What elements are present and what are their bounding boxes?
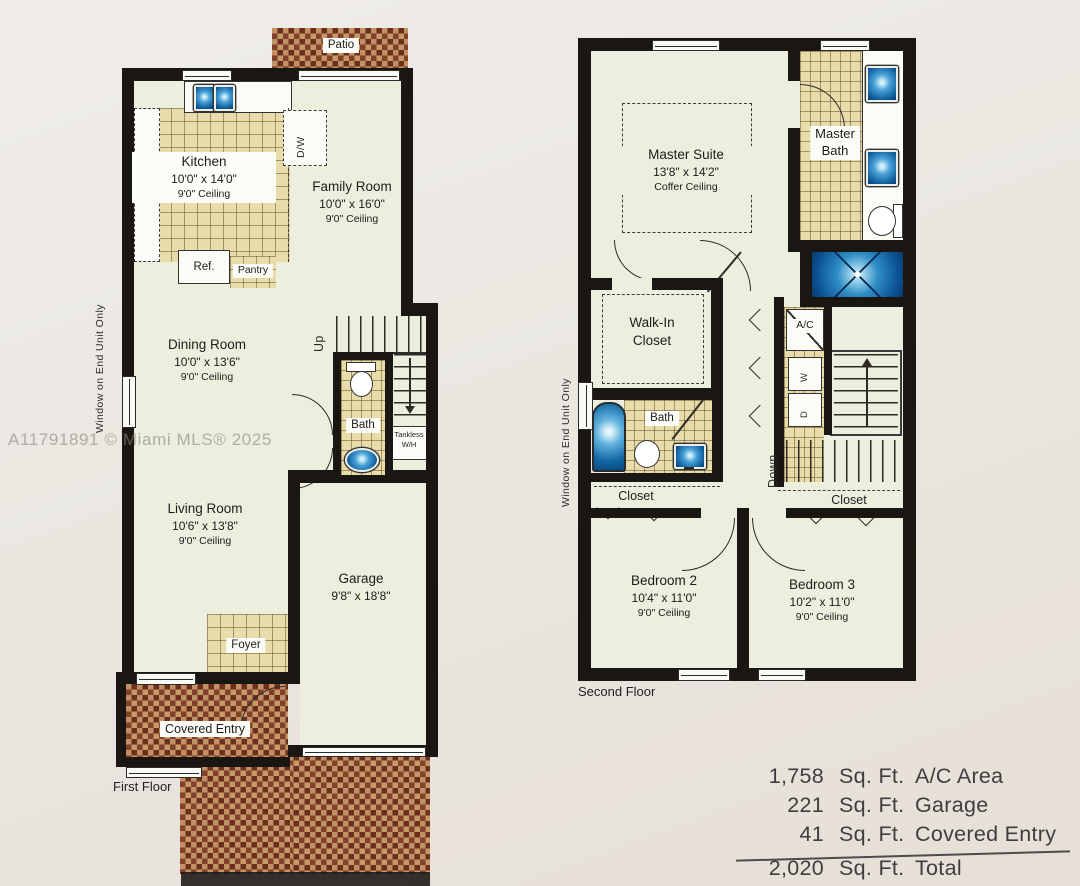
suite-bath-wall-upper <box>788 51 800 81</box>
entry-area-unit: Sq. Ft. <box>839 822 915 847</box>
dining-room-label: Dining Room 10'0" x 13'6" 9'0" Ceiling <box>147 336 267 385</box>
master-suite-dims: 13'8" x 14'2" <box>615 164 757 180</box>
sf-wall-left <box>578 38 591 681</box>
sf-wall-right <box>903 38 916 681</box>
mls-watermark: A11791891 © Miami MLS® 2025 <box>8 430 272 450</box>
closet-left-label: Closet <box>614 489 657 503</box>
bedroom2-window <box>678 669 730 681</box>
ac-label: A/C <box>793 319 817 333</box>
living-room-ceiling: 9'0" Ceiling <box>145 534 265 548</box>
dishwasher-label: D/W <box>295 118 307 158</box>
shower-left-wall <box>800 252 812 297</box>
stairs-down-label: Down <box>766 432 780 488</box>
stairs-up-label: Up <box>312 318 326 352</box>
toilet-bowl <box>350 371 373 397</box>
square-footage-table: 1,758 Sq. Ft. A/C Area 221 Sq. Ft. Garag… <box>736 764 1070 885</box>
walkin-label-1: Walk-In <box>602 314 702 332</box>
pantry-label: Pantry <box>233 264 273 278</box>
sf-bath-bottom-wall <box>578 473 723 482</box>
bedroom2-top-wall <box>591 508 701 518</box>
sf-bath-sink-base <box>684 467 694 470</box>
stair-direction-arrow <box>409 358 411 412</box>
dining-room-name: Dining Room <box>147 336 267 354</box>
garage-dims: 9'8" x 18'8" <box>301 588 421 604</box>
bedroom3-ceiling: 9'0" Ceiling <box>752 610 892 624</box>
sf-wall-bottom <box>578 668 916 681</box>
sf-window-note: Window on End Unit Only <box>560 382 572 507</box>
living-room-name: Living Room <box>145 500 265 518</box>
suite-bath-wall-lower <box>788 128 800 250</box>
kitchen-name: Kitchen <box>136 153 272 171</box>
family-room-ceiling: 9'0" Ceiling <box>292 212 412 226</box>
driveway-area <box>288 755 430 874</box>
entry-area-label: Covered Entry <box>915 822 1070 847</box>
sf-bath-label: Bath <box>645 411 679 426</box>
garage-area-unit: Sq. Ft. <box>839 793 915 818</box>
stairs-up-flight <box>336 316 426 352</box>
sf-side-window <box>578 382 593 430</box>
patio-slider-door <box>298 70 400 81</box>
laundry-right-wall <box>824 307 832 435</box>
dining-room-ceiling: 9'0" Ceiling <box>147 370 267 384</box>
covered-entry-left-wall <box>116 672 126 767</box>
ff-bath-sink <box>345 448 379 472</box>
master-suite-ceiling: Coffer Ceiling <box>615 180 757 194</box>
patio-label: Patio <box>323 38 359 53</box>
dryer-label: D <box>799 400 810 418</box>
ac-area-unit: Sq. Ft. <box>839 764 915 789</box>
dining-room-dims: 10'0" x 13'6" <box>147 354 267 370</box>
dining-side-window <box>122 376 136 428</box>
closet-right-label: Closet <box>827 493 870 507</box>
bedroom2-dims: 10'4" x 11'0" <box>594 590 734 606</box>
ff-wall-right-lower <box>426 303 438 757</box>
walkin-label-2: Closet <box>602 332 702 350</box>
living-room-label: Living Room 10'6" x 13'8" 9'0" Ceiling <box>145 500 265 549</box>
stairs-down-arrow <box>866 360 868 426</box>
bedroom3-label: Bedroom 3 10'2" x 11'0" 9'0" Ceiling <box>752 576 892 625</box>
master-suite-window <box>652 40 720 51</box>
entry-step <box>126 767 202 778</box>
family-room-dims: 10'0" x 16'0" <box>292 196 412 212</box>
living-front-window <box>136 673 196 685</box>
kitchen-window <box>182 70 232 81</box>
washer-label: W <box>799 364 810 382</box>
master-shower <box>812 252 903 297</box>
sf-bath-sink <box>674 444 706 469</box>
driveway-area-left <box>180 765 292 874</box>
kitchen-dims: 10'0" x 14'0" <box>136 171 272 187</box>
bathtub <box>592 402 626 472</box>
shower-top-wall <box>788 240 916 252</box>
ff-bath-label: Bath <box>346 418 380 433</box>
family-room-name: Family Room <box>292 178 412 196</box>
sheet-edge-strip <box>181 872 430 886</box>
bedroom3-name: Bedroom 3 <box>752 576 892 594</box>
refrigerator-label: Ref. <box>193 261 214 273</box>
garage-door <box>302 747 426 757</box>
bedroom3-dims: 10'2" x 11'0" <box>752 594 892 610</box>
master-bath-window <box>820 40 870 51</box>
kitchen-sink-basin-right <box>214 85 235 111</box>
second-floor-caption: Second Floor <box>578 684 655 699</box>
bedroom3-top-wall <box>786 508 903 518</box>
tankless-label-2: W/H <box>402 440 417 449</box>
ac-area-label: A/C Area <box>915 764 1070 789</box>
garage-name: Garage <box>301 570 421 588</box>
living-room-dims: 10'6" x 13'8" <box>145 518 265 534</box>
master-bath-sink-2 <box>866 150 898 186</box>
garage-area-label: Garage <box>915 793 1070 818</box>
entry-area-value: 41 <box>736 822 824 847</box>
covered-entry-bottom-wall <box>116 757 290 767</box>
total-area-unit: Sq. Ft. <box>839 856 915 881</box>
garage-interior <box>300 483 426 745</box>
tankless-label: Tankless W/H <box>390 430 428 450</box>
table-row: 1,758 Sq. Ft. A/C Area <box>736 764 1070 793</box>
first-floor-caption: First Floor <box>113 779 172 794</box>
master-bath-label-1: Master <box>815 126 855 143</box>
garage-label: Garage 9'8" x 18'8" <box>301 570 421 604</box>
master-bath-label: Master Bath <box>810 126 860 160</box>
living-garage-wall <box>288 470 300 684</box>
master-bath-sink-1 <box>866 66 898 102</box>
table-row-total: 2,020 Sq. Ft. Total <box>736 856 1070 885</box>
ff-window-note: Window on End Unit Only <box>94 308 106 433</box>
bedroom-divider-wall <box>737 508 749 668</box>
walkin-label: Walk-In Closet <box>602 314 702 350</box>
bedroom2-name: Bedroom 2 <box>594 572 734 590</box>
total-area-label: Total <box>915 856 1070 881</box>
bedroom2-ceiling: 9'0" Ceiling <box>594 606 734 620</box>
ac-area-value: 1,758 <box>736 764 824 789</box>
covered-entry-label: Covered Entry <box>160 721 250 737</box>
bedroom2-label: Bedroom 2 10'4" x 11'0" 9'0" Ceiling <box>594 572 734 621</box>
foyer-label: Foyer <box>226 638 265 653</box>
bedroom3-window <box>758 669 806 681</box>
closet-left-rod <box>594 486 720 487</box>
table-row: 221 Sq. Ft. Garage <box>736 793 1070 822</box>
kitchen-ceiling: 9'0" Ceiling <box>136 187 272 201</box>
closet-right-rod <box>778 490 900 491</box>
refrigerator-box: Ref. <box>178 250 230 284</box>
sf-toilet-bowl <box>634 440 660 468</box>
table-row: 41 Sq. Ft. Covered Entry <box>736 822 1070 851</box>
garage-area-value: 221 <box>736 793 824 818</box>
walkin-right-wall <box>711 278 723 400</box>
kitchen-label: Kitchen 10'0" x 14'0" 9'0" Ceiling <box>132 152 276 203</box>
walkin-door-opening <box>612 278 652 290</box>
master-toilet-bowl <box>868 206 896 236</box>
tankless-label-1: Tankless <box>394 430 423 439</box>
sf-bath-top-wall <box>578 388 723 400</box>
master-bath-label-2: Bath <box>815 143 855 160</box>
shower-bottom-wall <box>800 297 903 307</box>
kitchen-sink-basin-left <box>194 85 215 111</box>
stairs-lower-flight <box>786 440 902 482</box>
master-suite-label: Master Suite 13'8" x 14'2" Coffer Ceilin… <box>615 146 757 195</box>
master-suite-name: Master Suite <box>615 146 757 164</box>
sf-bath-right-wall <box>712 388 723 482</box>
family-room-label: Family Room 10'0" x 16'0" 9'0" Ceiling <box>292 178 412 227</box>
